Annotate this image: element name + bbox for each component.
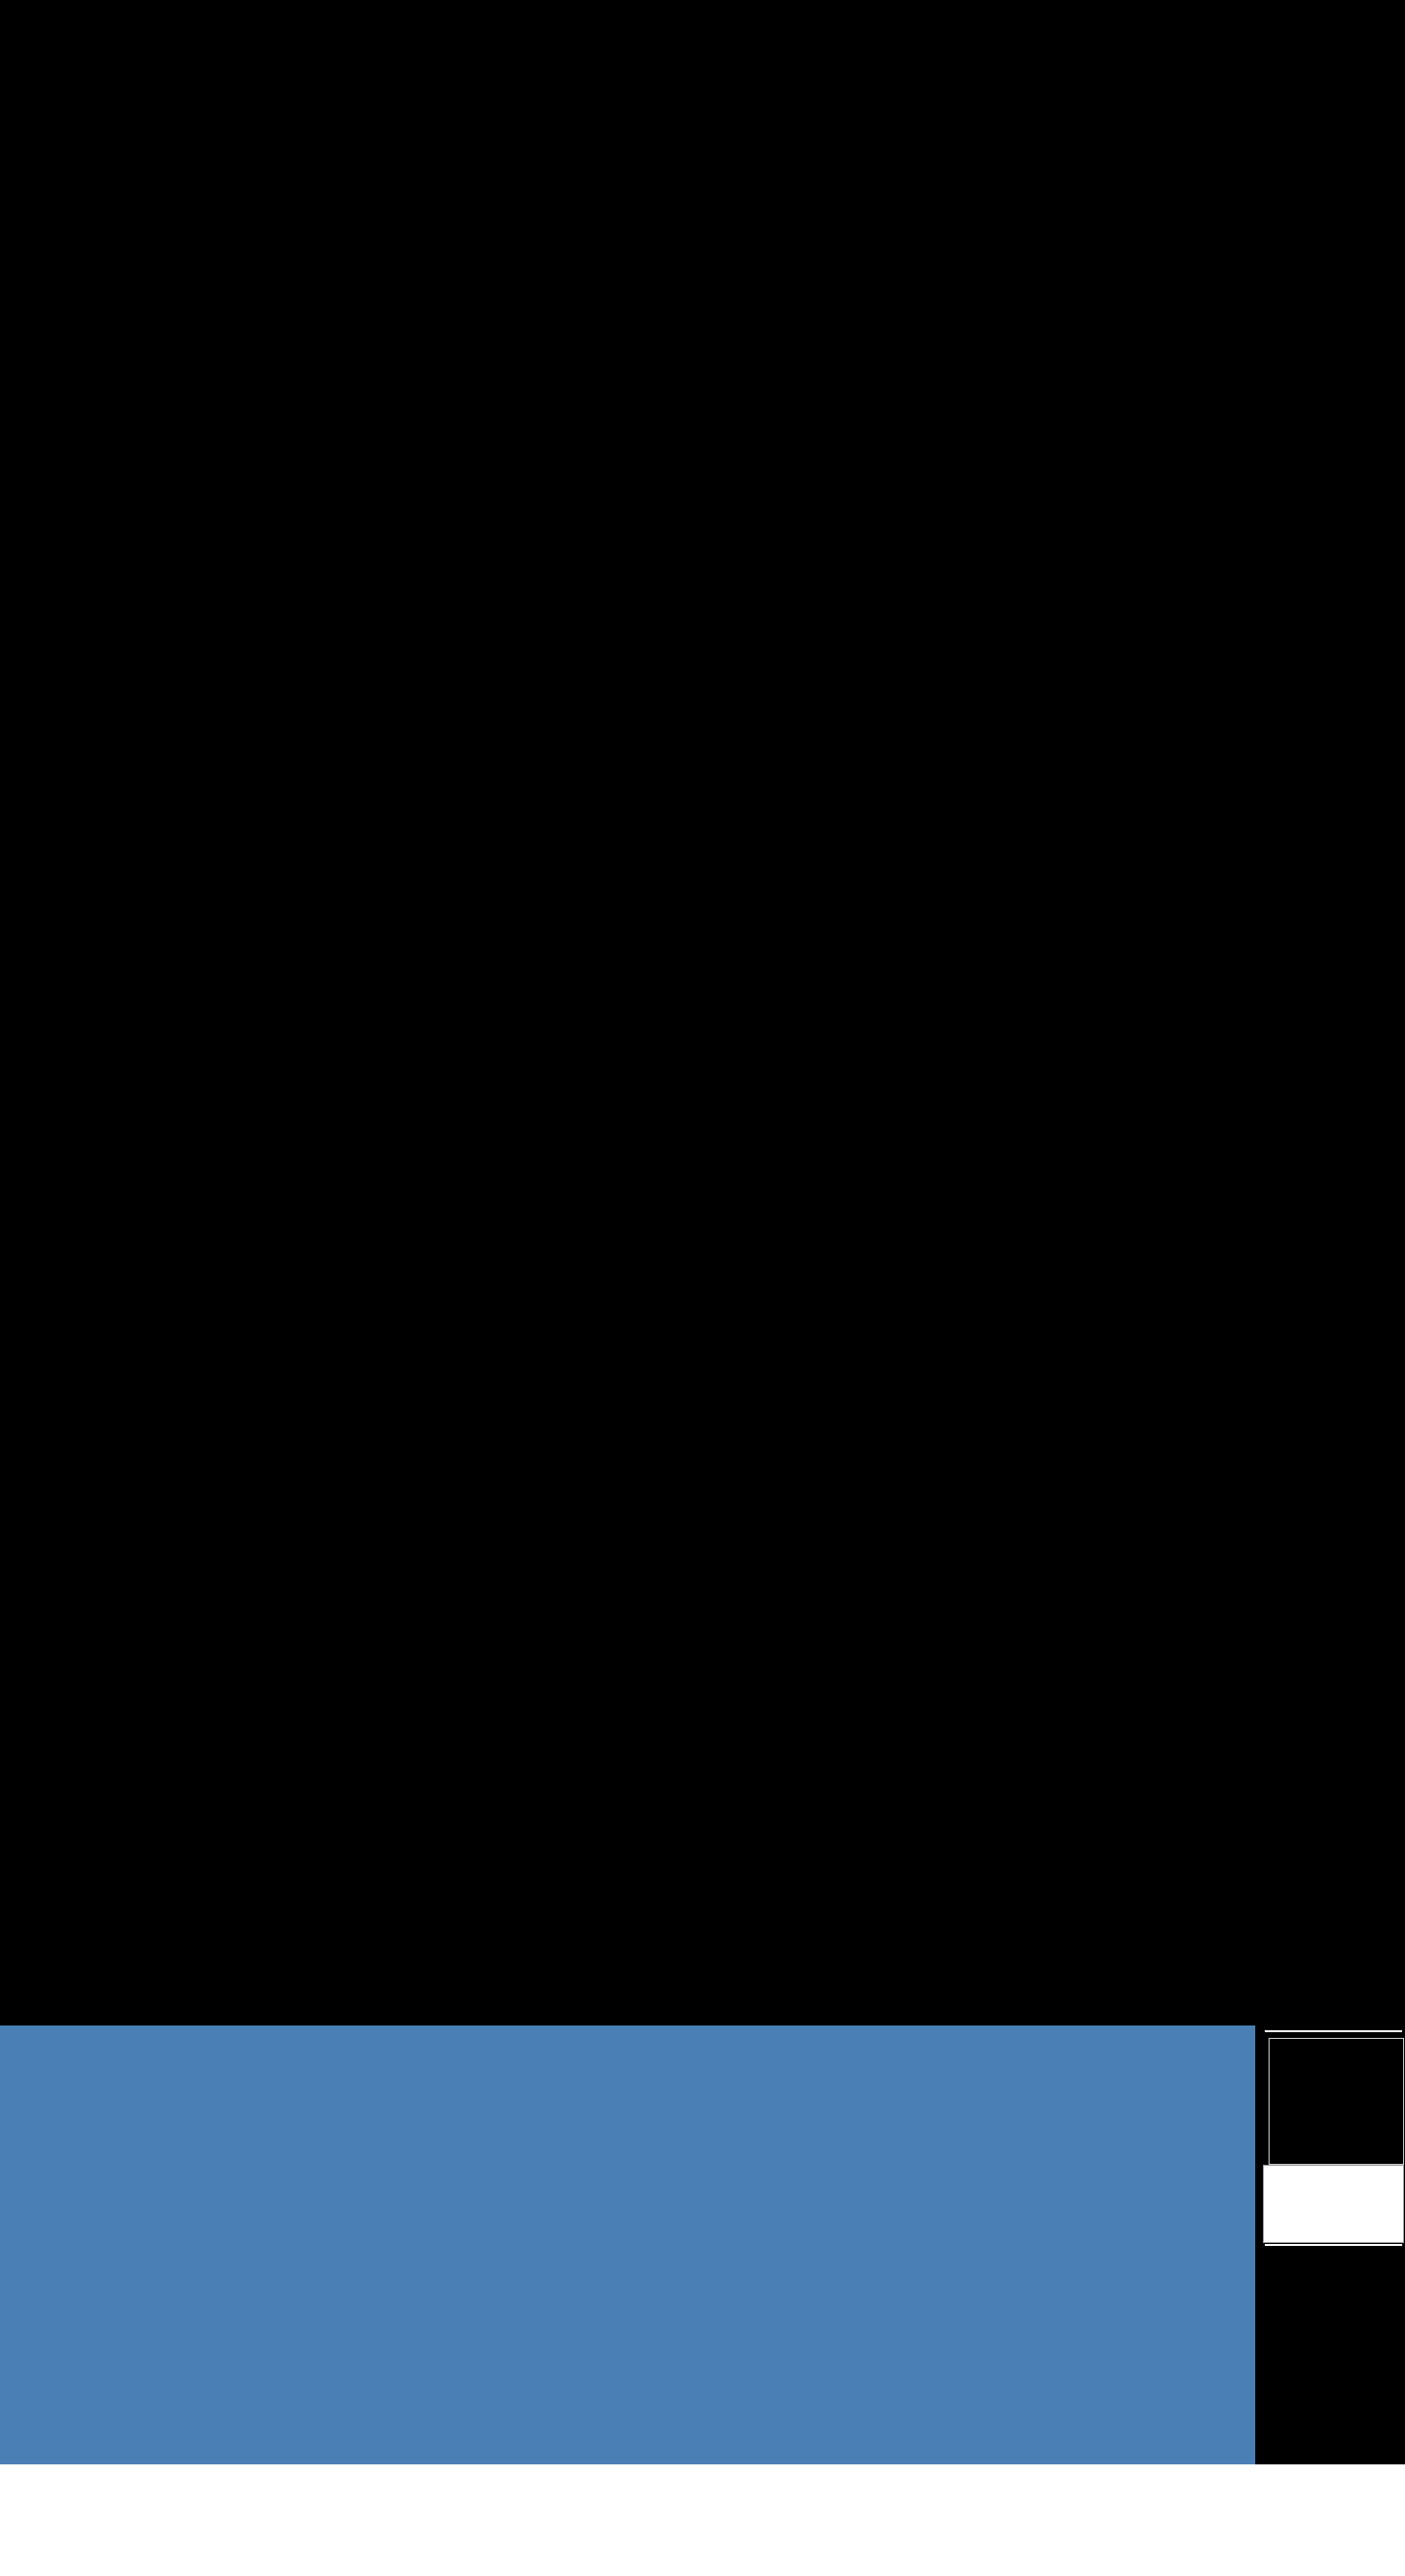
legend-separator-top [1265,2030,1402,2032]
bottom-whitespace [0,2464,1405,2576]
timeline-legend [1269,2038,1404,2165]
timeline-name-list[interactable] [1263,2165,1404,2243]
timeline-grid [0,2025,1255,2464]
app-stage [0,0,1405,2576]
legend-separator-bottom [1265,2244,1402,2246]
